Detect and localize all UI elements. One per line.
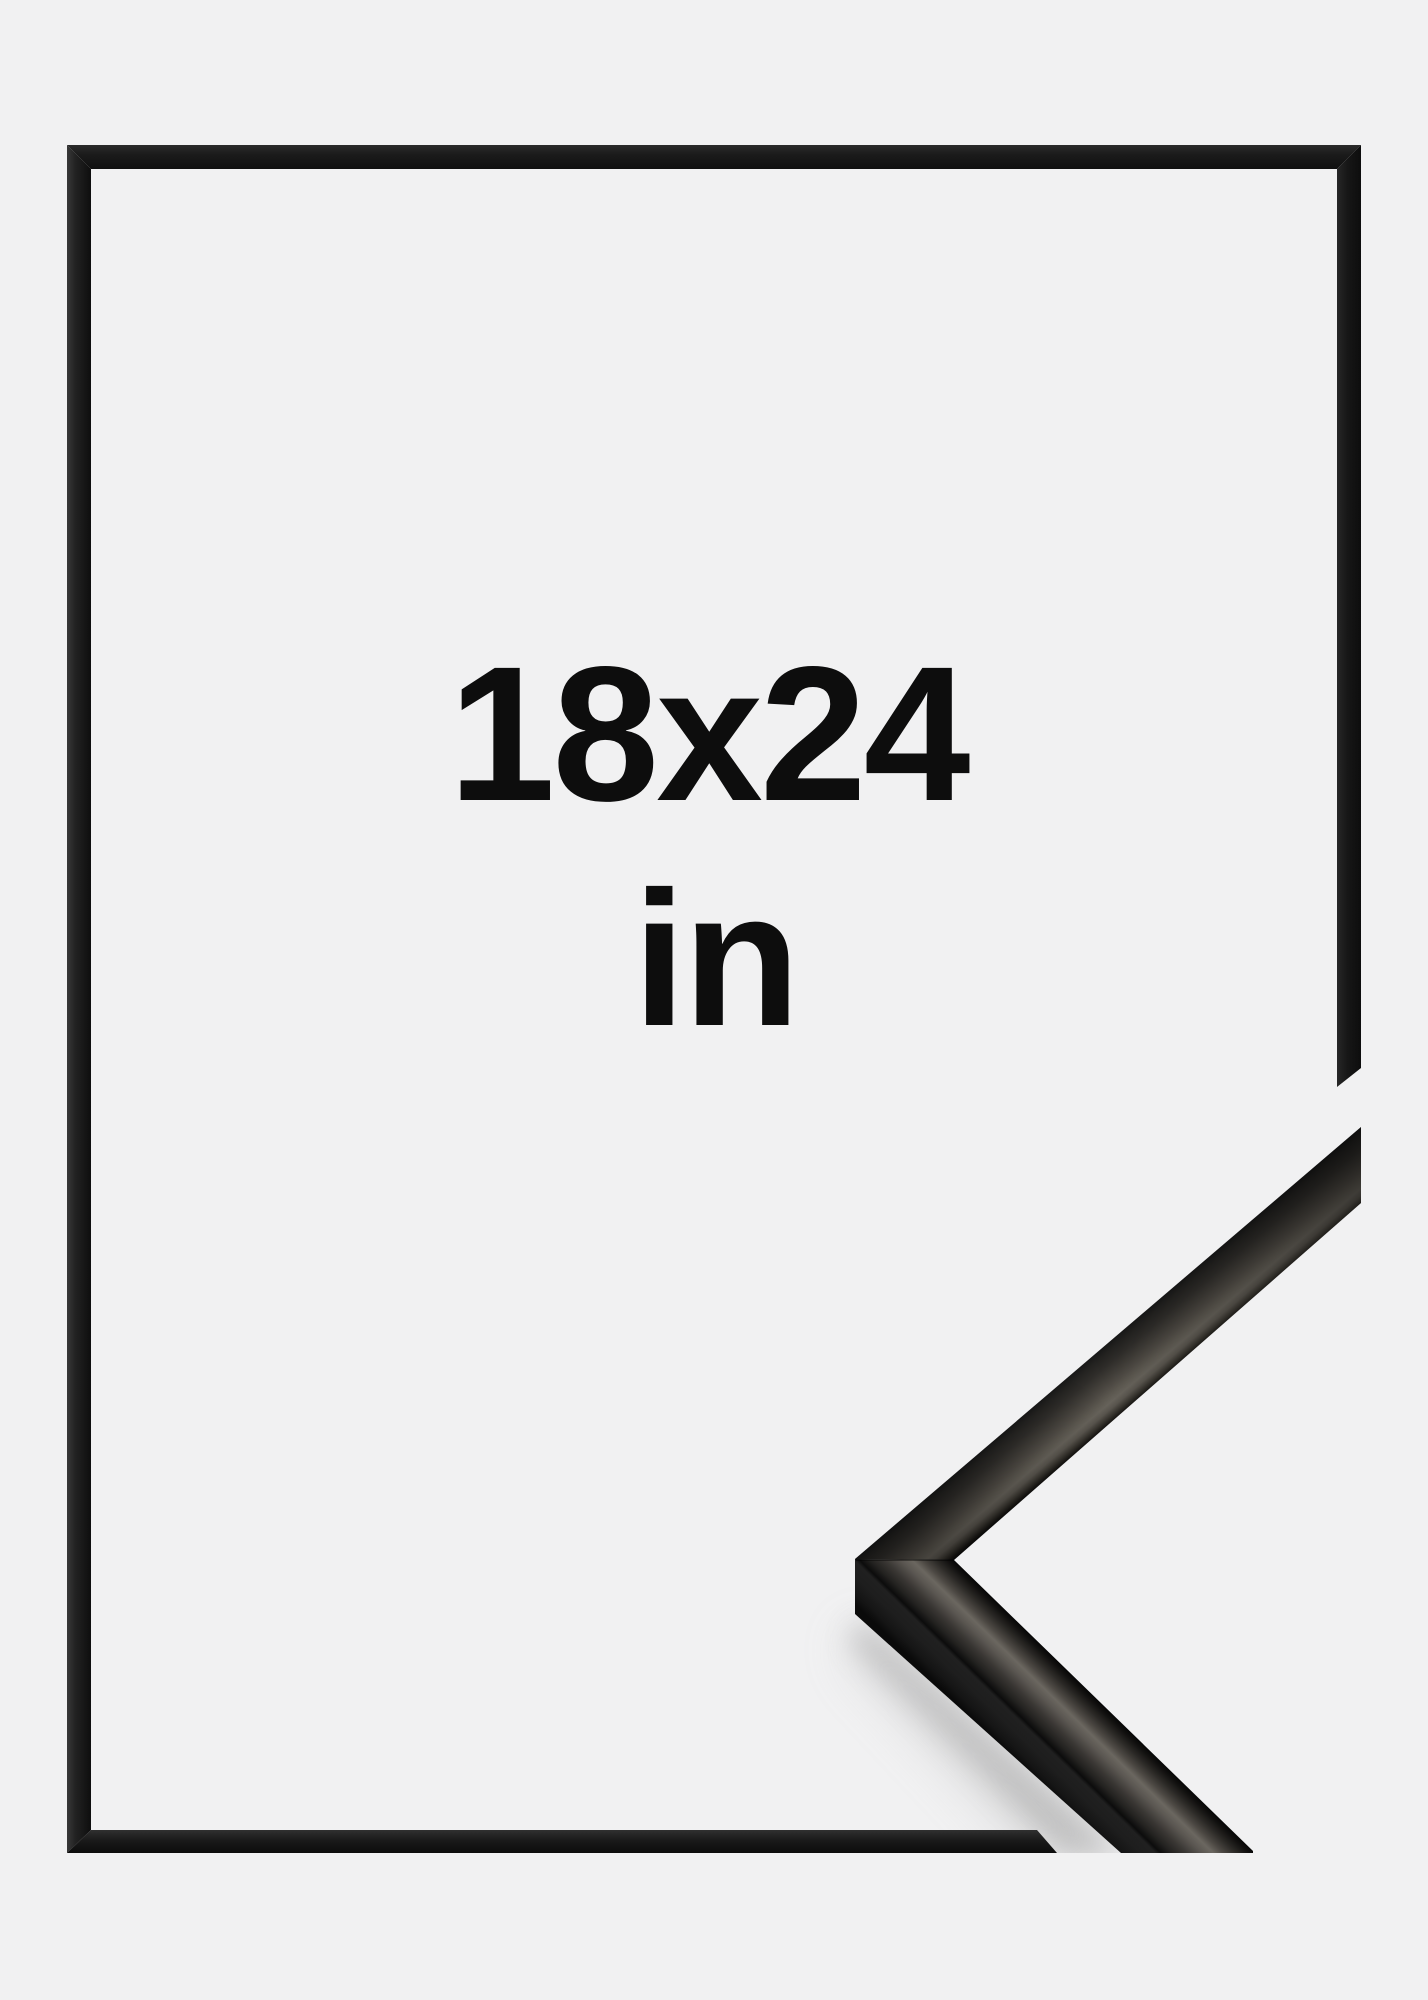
svg-text:18x24: 18x24 [449,626,970,841]
svg-text:in: in [633,851,798,1066]
